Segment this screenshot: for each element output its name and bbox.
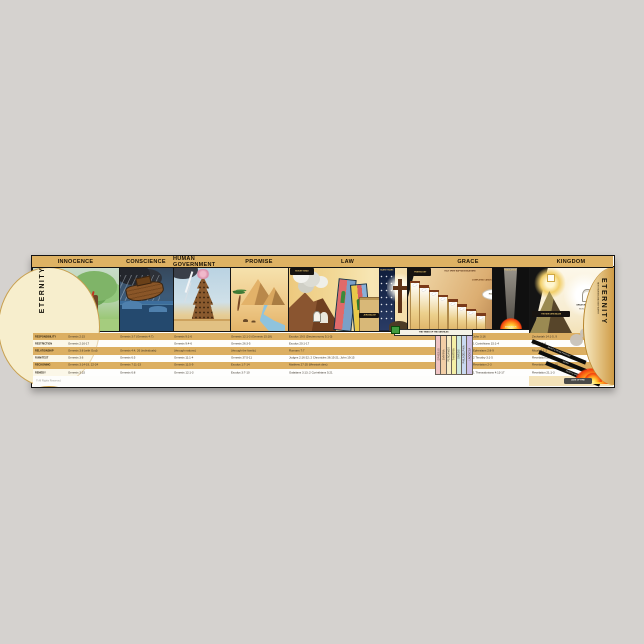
header-human-government: HUMAN GOVERNMENT bbox=[173, 256, 231, 268]
header-kingdom: KINGDOM bbox=[529, 256, 613, 268]
header-promise-label: PROMISE bbox=[245, 259, 272, 265]
header-bar: INNOCENCE CONSCIENCE HUMAN GOVERNMENT PR… bbox=[32, 256, 614, 267]
eternity-right-label-wrap: ETERNITY bbox=[600, 278, 607, 330]
judgment-beam-label: SATAN bbox=[563, 361, 569, 365]
eternity-right-sub-label: NEW HEAVEN AND NEW EARTH bbox=[597, 282, 599, 314]
eternity-right-label: ETERNITY bbox=[600, 278, 607, 325]
eternity-right-sub-wrap: NEW HEAVEN AND NEW EARTH bbox=[595, 282, 601, 378]
product-photo-background: JERUSALEM SILENT YEARS MOUNT SINAI PENTE… bbox=[0, 0, 644, 644]
header-human-government-label: HUMAN GOVERNMENT bbox=[173, 256, 230, 268]
header-innocence-label: INNOCENCE bbox=[58, 259, 94, 265]
header-conscience-label: CONSCIENCE bbox=[126, 259, 166, 265]
header-law: LAW bbox=[288, 256, 408, 268]
header-law-label: LAW bbox=[341, 259, 354, 265]
lake-of-fire-badge: LAKE OF FIRE bbox=[564, 378, 592, 384]
header-grace-label: GRACE bbox=[457, 259, 478, 265]
header-conscience: CONSCIENCE bbox=[119, 256, 174, 268]
judgment-beams-layer: BEAST & FALSE PROPHETSATANDEATH & HADES bbox=[32, 256, 614, 387]
header-grace: GRACE bbox=[407, 256, 530, 268]
dispensations-poster: JERUSALEM SILENT YEARS MOUNT SINAI PENTE… bbox=[31, 255, 615, 388]
header-innocence: INNOCENCE bbox=[32, 256, 120, 268]
lake-of-fire-label: LAKE OF FIRE bbox=[571, 379, 585, 381]
header-promise: PROMISE bbox=[230, 256, 289, 268]
header-kingdom-label: KINGDOM bbox=[557, 259, 586, 265]
